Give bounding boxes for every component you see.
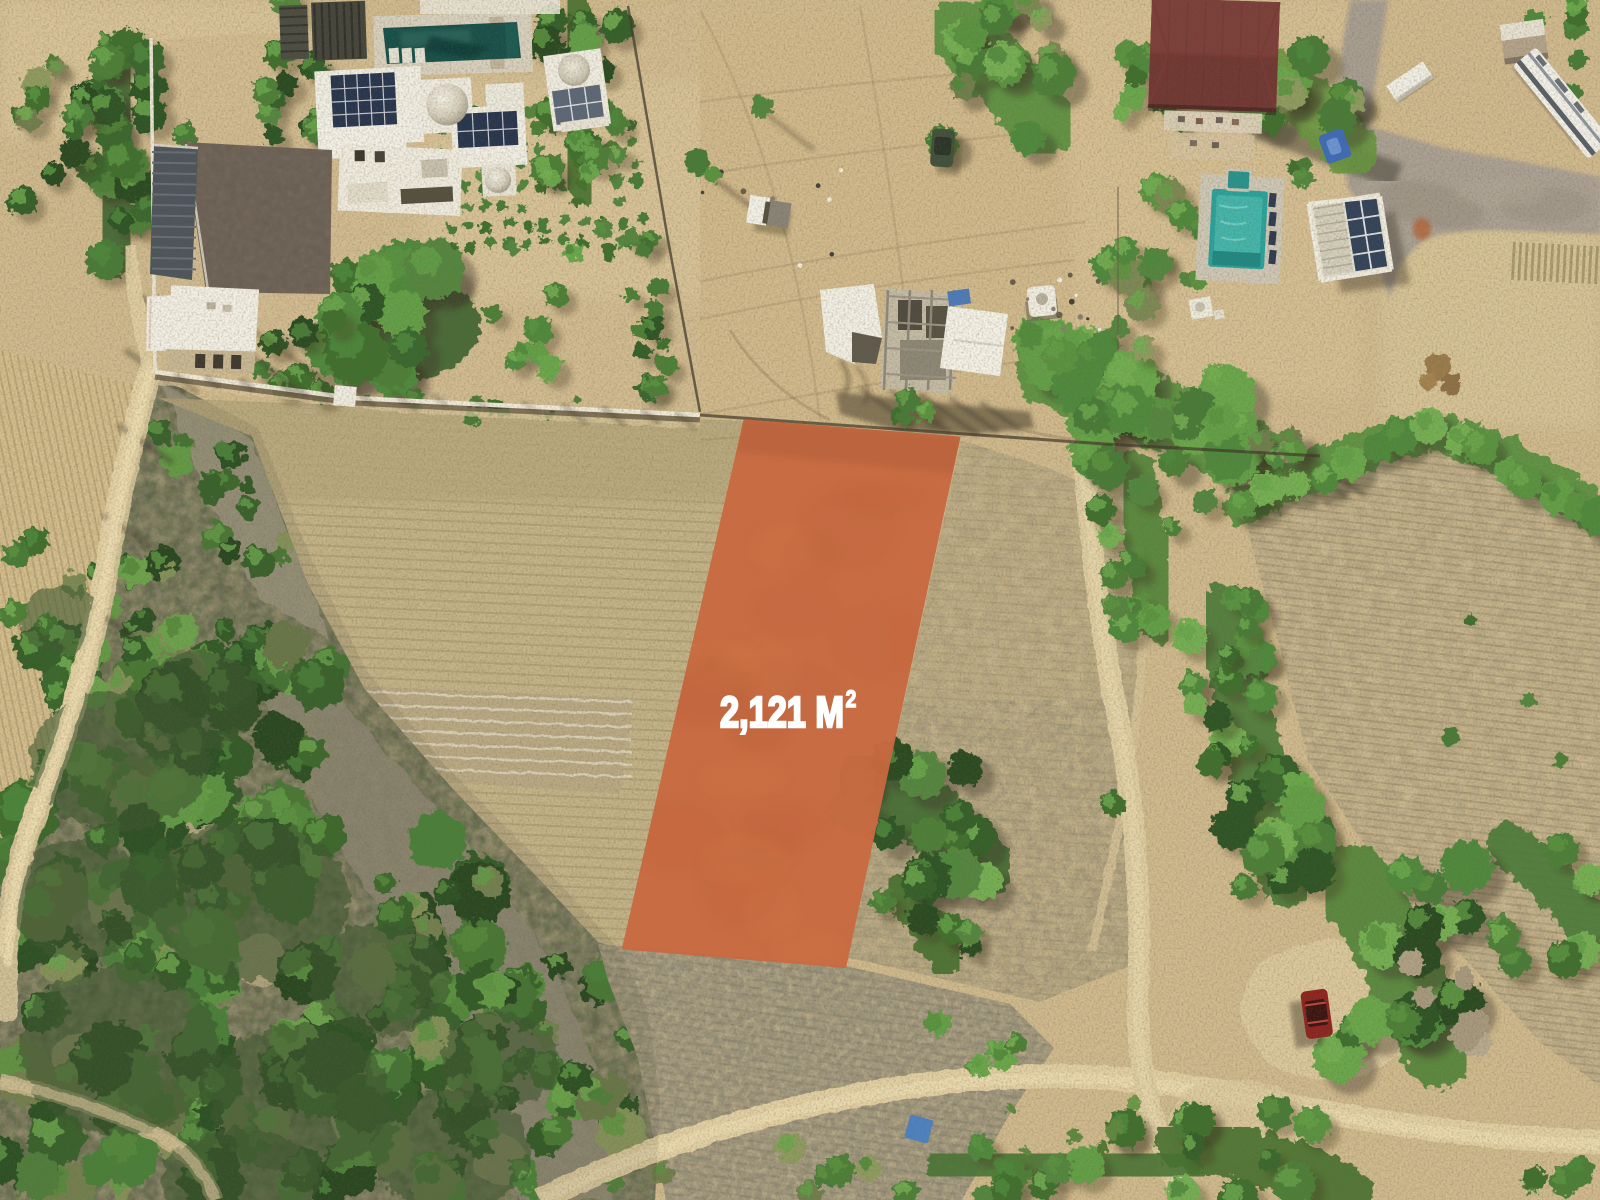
svg-text:2: 2 — [846, 685, 857, 713]
svg-text:2,121 M: 2,121 M — [720, 688, 844, 737]
